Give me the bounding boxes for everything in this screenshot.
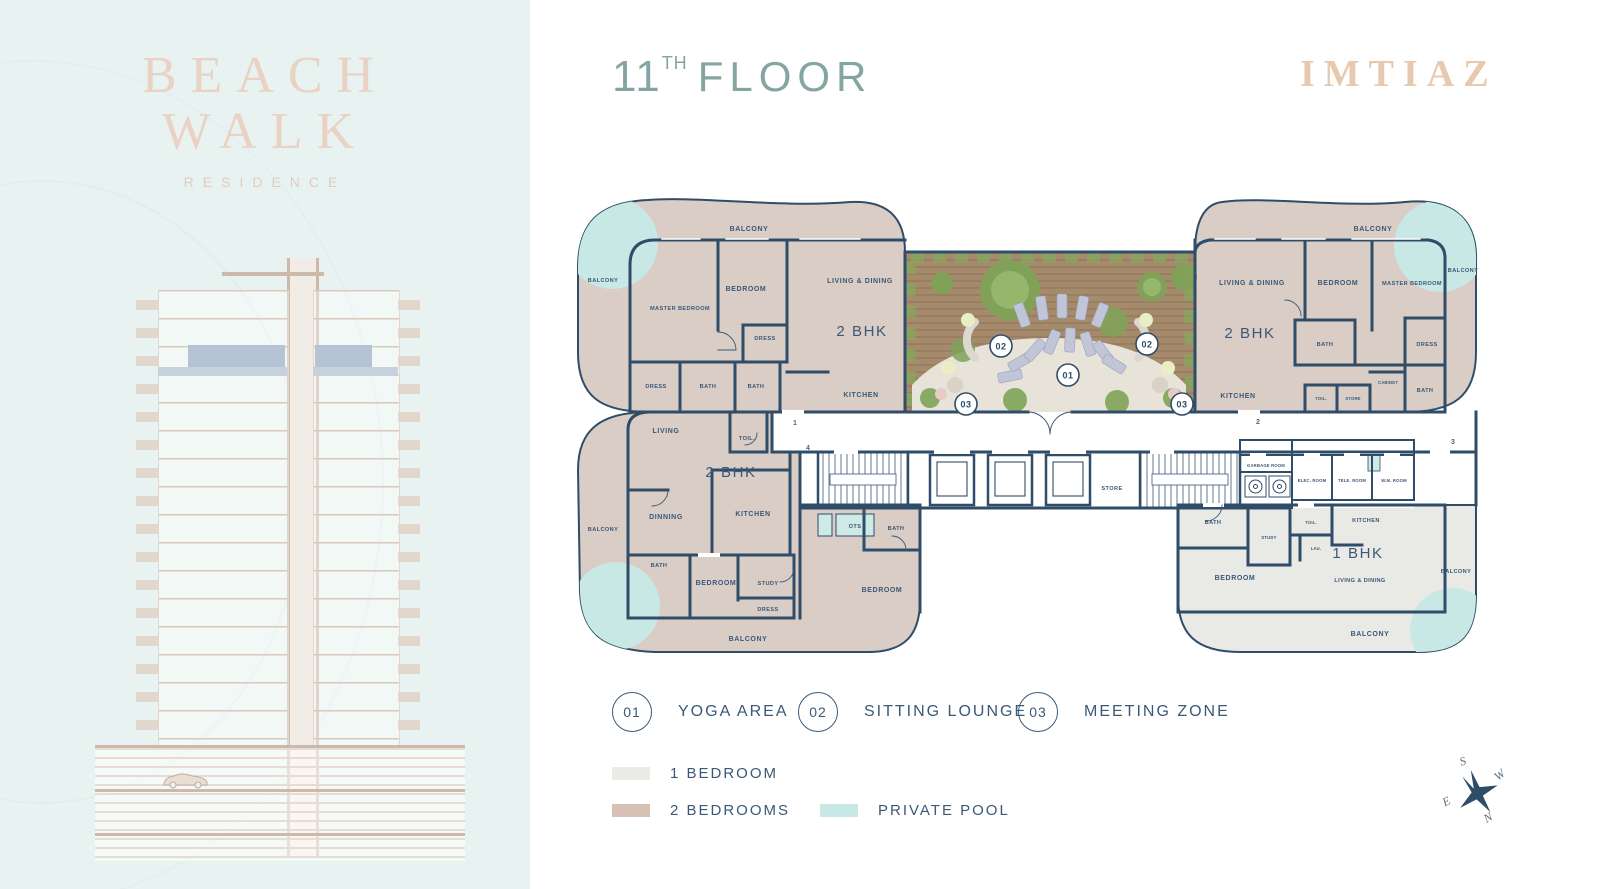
compass-south: S xyxy=(1458,754,1468,769)
room-label: BEDROOM xyxy=(862,587,903,594)
room-label: LIVING & DINING xyxy=(1219,280,1285,287)
room-label: LAU. xyxy=(1311,546,1322,551)
compass-east: E xyxy=(1439,793,1453,809)
highlighted-floor-band-secondary xyxy=(313,367,398,376)
room-label: BALCONY xyxy=(729,636,768,643)
highlighted-floor-band xyxy=(188,345,285,367)
legend-label-03: MEETING ZONE xyxy=(1084,703,1230,721)
room-label: STUDY xyxy=(758,581,779,587)
garden-terrace xyxy=(905,252,1197,414)
elevator-bank[interactable] xyxy=(930,455,1090,505)
legend-label-02: SITTING LOUNGE xyxy=(864,703,1027,721)
room-label: BALCONY xyxy=(1441,569,1471,575)
swatch-label: PRIVATE POOL xyxy=(878,802,1010,819)
room-label: BATH xyxy=(888,526,905,532)
legend-2-bedrooms: 2 BEDROOMS xyxy=(612,802,790,819)
room-label: BALCONY xyxy=(588,278,618,284)
room-label: W.M. ROOM xyxy=(1381,478,1407,483)
floor-ordinal: TH xyxy=(662,53,688,73)
unit-type-label: 2 BHK xyxy=(836,323,887,340)
unit-number: 1 xyxy=(793,420,797,427)
svg-text:03: 03 xyxy=(1176,400,1187,410)
svg-text:02: 02 xyxy=(995,342,1006,352)
room-label: BALCONY xyxy=(588,527,618,533)
swatch-label: 2 BEDROOMS xyxy=(670,802,790,819)
room-label: BEDROOM xyxy=(696,580,737,587)
swatch-private-pool xyxy=(820,804,858,817)
highlighted-floor-band xyxy=(315,345,372,367)
room-label: OTS xyxy=(849,524,862,530)
compass-rose: S W E N xyxy=(1415,735,1540,845)
podium-slab xyxy=(95,789,465,792)
podium-slab xyxy=(95,833,465,836)
page: BEACH WALK RESIDENCE xyxy=(0,0,1600,889)
room-label: LIVING & DINING xyxy=(1334,578,1385,584)
room-label: BATH xyxy=(1317,342,1334,348)
room-label: BALCONY xyxy=(1351,631,1390,638)
marker-03-right[interactable]: 03 xyxy=(1171,393,1193,415)
elevator-car xyxy=(995,462,1025,496)
svg-text:02: 02 xyxy=(1141,340,1152,350)
swatch-1-bedroom xyxy=(612,767,650,780)
compass-north: N xyxy=(1480,809,1496,826)
compass-west: W xyxy=(1491,766,1508,784)
unit-type-label: 2 BHK xyxy=(705,464,756,481)
podium-parking xyxy=(95,745,465,861)
swatch-2-bedrooms xyxy=(612,804,650,817)
legend-yoga-area: 01 YOGA AREA xyxy=(612,692,788,732)
room-label: KITCHEN xyxy=(843,392,878,399)
room-label: DRESS xyxy=(645,384,666,390)
room-label: MASTER BEDROOM xyxy=(1382,281,1442,287)
room-label: BALCONY xyxy=(730,226,769,233)
swatch-label: 1 BEDROOM xyxy=(670,765,778,782)
room-label: STUDY xyxy=(1261,535,1276,540)
developer-logo: IMTIAZ xyxy=(1300,52,1490,96)
service-rooms xyxy=(1240,440,1414,508)
room-label: MASTER BEDROOM xyxy=(650,306,710,312)
room-label: LIVING & DINING xyxy=(827,278,893,285)
room-label: LIVING xyxy=(653,428,680,435)
elevator-car xyxy=(1053,462,1083,496)
room-label: CABINET xyxy=(1378,380,1398,385)
legend-label-01: YOGA AREA xyxy=(678,703,788,721)
room-label: TOIL. xyxy=(1305,520,1317,525)
room-label: ELEC. ROOM xyxy=(1298,478,1327,483)
room-label: BATH xyxy=(1205,520,1222,526)
legend-sitting-lounge: 02 SITTING LOUNGE xyxy=(798,692,1027,732)
room-label: DINNING xyxy=(649,514,683,521)
shaft-box xyxy=(818,514,832,536)
room-label: BATH xyxy=(1417,388,1434,394)
room-label: KITCHEN xyxy=(1352,518,1380,524)
unit-number: 3 xyxy=(1451,439,1455,446)
room-label: DRESS xyxy=(754,336,775,342)
room-label: TOIL. xyxy=(1315,396,1327,401)
svg-text:01: 01 xyxy=(1062,371,1073,381)
room-label: BATH xyxy=(748,384,765,390)
tower-balconies-left xyxy=(136,300,158,740)
brand-panel: BEACH WALK RESIDENCE xyxy=(0,0,530,889)
room-label: DRESS xyxy=(757,607,778,613)
room-label: BEDROOM xyxy=(1318,280,1359,287)
room-label: TELE. ROOM xyxy=(1338,478,1366,483)
page-title: 11THFLOOR xyxy=(612,52,872,102)
marker-02-right[interactable]: 02 xyxy=(1136,333,1158,355)
room-label: KITCHEN xyxy=(1220,393,1255,400)
legend-private-pool: PRIVATE POOL xyxy=(820,802,1010,819)
room-label: BEDROOM xyxy=(726,286,767,293)
car-illustration xyxy=(160,770,212,795)
room-label: BATH xyxy=(651,563,668,569)
room-label: BALCONY xyxy=(1354,226,1393,233)
unit-type-label: 1 BHK xyxy=(1332,545,1383,562)
elevator-car xyxy=(937,462,967,496)
room-label: TOIL. xyxy=(739,436,755,442)
floor-number: 11 xyxy=(612,52,662,101)
private-pool-bottom-left xyxy=(572,562,660,650)
unit-number: 4 xyxy=(806,445,810,452)
building-elevation xyxy=(0,0,530,889)
room-label: STORE xyxy=(1101,486,1122,492)
shaft-box xyxy=(1368,455,1380,471)
legend-circle-02: 02 xyxy=(798,692,838,732)
room-label: BEDROOM xyxy=(1215,575,1256,582)
marker-02-left[interactable]: 02 xyxy=(990,335,1012,357)
room-label: GARBAGE ROOM xyxy=(1247,463,1285,468)
floor-plan: BALCONY BALCONY MASTER BEDROOM BEDROOM L… xyxy=(560,170,1510,680)
marker-03-left[interactable]: 03 xyxy=(955,393,977,415)
room-label: BALCONY xyxy=(1448,268,1478,274)
legend-meeting-zone: 03 MEETING ZONE xyxy=(1018,692,1230,732)
roof-lintel xyxy=(222,272,324,276)
room-label: BATH xyxy=(700,384,717,390)
legend-circle-01: 01 xyxy=(612,692,652,732)
legend-circle-03: 03 xyxy=(1018,692,1058,732)
room-label: STORE xyxy=(1345,396,1360,401)
highlighted-floor-band-secondary xyxy=(158,367,287,376)
room-label: DRESS xyxy=(1416,342,1437,348)
private-pool-bottom-right xyxy=(1410,588,1494,672)
marker-01[interactable]: 01 xyxy=(1057,364,1079,386)
tower-balconies-right xyxy=(398,300,420,740)
svg-text:03: 03 xyxy=(960,400,971,410)
unit-number: 2 xyxy=(1256,419,1260,426)
floor-word: FLOOR xyxy=(698,53,873,100)
room-label: KITCHEN xyxy=(735,511,770,518)
unit-type-label: 2 BHK xyxy=(1224,325,1275,342)
legend-1-bedroom: 1 BEDROOM xyxy=(612,765,778,782)
